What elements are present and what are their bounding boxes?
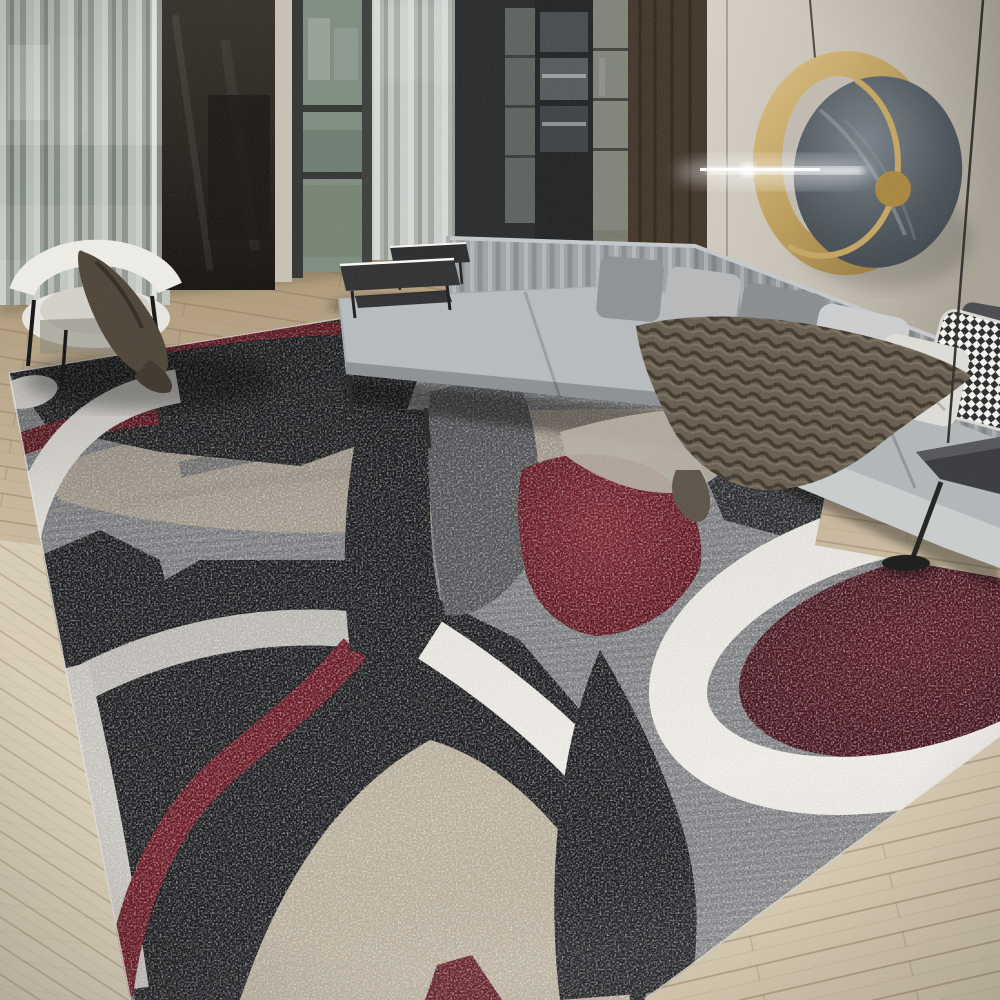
- photo-canvas: [0, 0, 1000, 1000]
- living-room-photo: [0, 0, 1000, 1000]
- photo-grain: [0, 0, 1000, 1000]
